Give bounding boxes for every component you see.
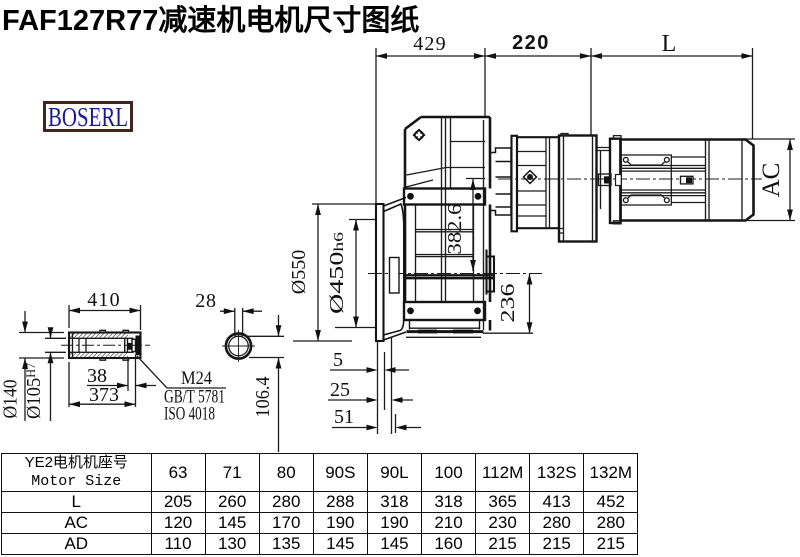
- svg-text:25: 25: [330, 379, 350, 401]
- svg-text:ISO 4018: ISO 4018: [164, 404, 215, 425]
- svg-text:AC: AC: [758, 163, 785, 198]
- svg-text:373: 373: [89, 384, 119, 406]
- svg-text:28: 28: [195, 290, 217, 312]
- svg-text:51: 51: [334, 406, 354, 428]
- svg-text:220: 220: [512, 32, 550, 54]
- svg-text:Ø140: Ø140: [0, 380, 22, 419]
- svg-text:Ø450h6: Ø450h6: [326, 232, 348, 314]
- svg-text:410: 410: [87, 289, 121, 311]
- svg-text:Ø105H7: Ø105H7: [23, 363, 45, 419]
- svg-text:L: L: [662, 31, 677, 57]
- svg-text:5: 5: [333, 349, 343, 371]
- svg-text:429: 429: [413, 33, 447, 55]
- svg-text:Ø550: Ø550: [288, 250, 310, 294]
- svg-text:106.4: 106.4: [252, 377, 274, 418]
- svg-text:236: 236: [497, 284, 519, 323]
